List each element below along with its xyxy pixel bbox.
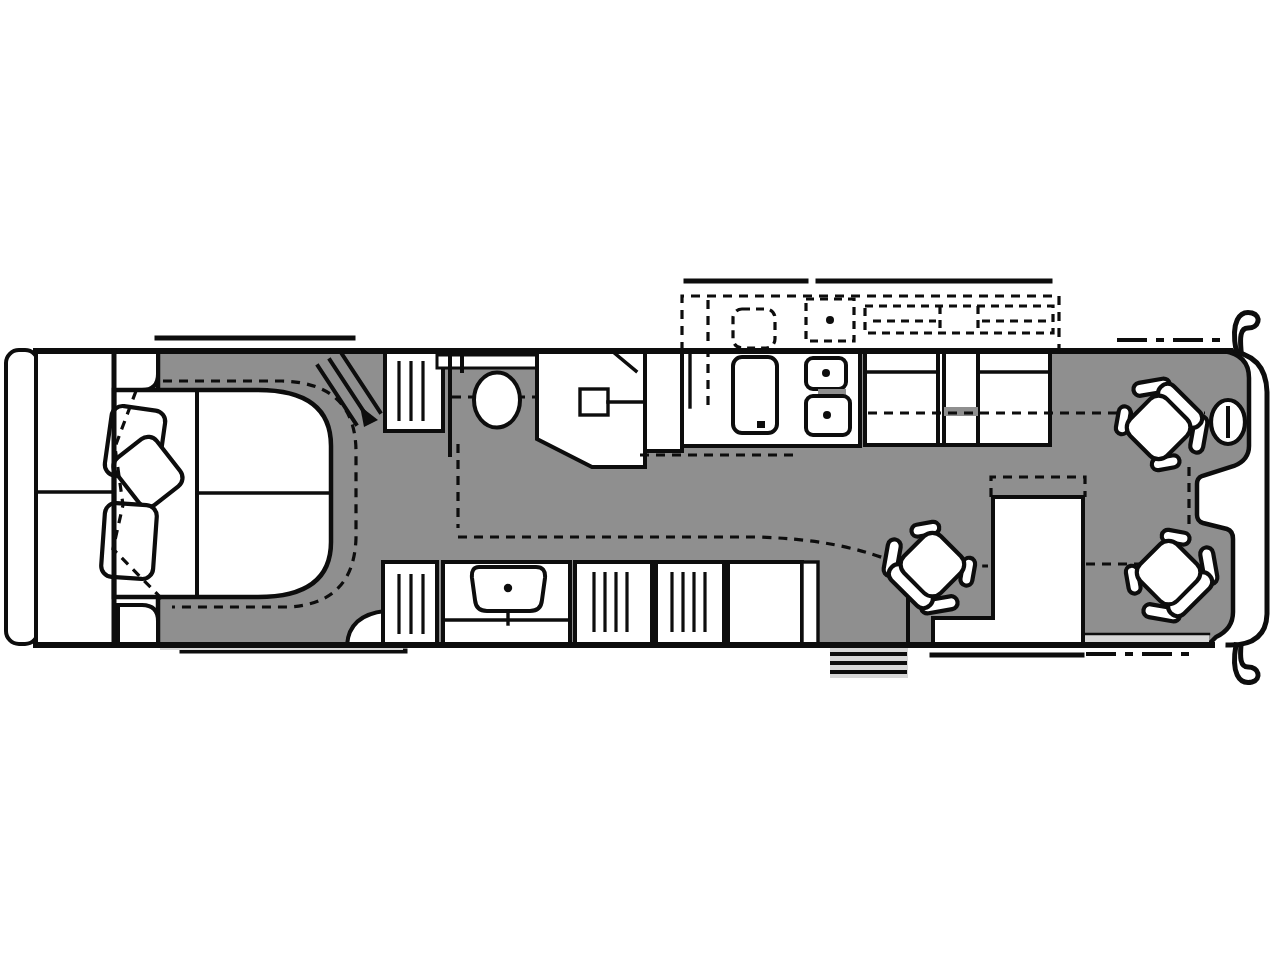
louvered-cabinet — [656, 562, 724, 645]
cabinet-end-panel — [802, 562, 818, 645]
rear-wardrobe — [36, 351, 114, 645]
pillow — [100, 502, 157, 579]
nightstand-top — [114, 351, 158, 390]
mirror-top — [1234, 313, 1258, 350]
bath-window — [437, 355, 538, 368]
shower-head — [580, 389, 608, 415]
floor-plan-page — [0, 0, 1280, 960]
louvered-cabinet — [575, 562, 652, 645]
kitchen-counter-stove-unit — [865, 351, 1050, 445]
double-kitchen-sink — [806, 358, 850, 435]
floor-plan-svg — [0, 0, 1280, 960]
plain-cabinet — [728, 562, 802, 645]
steering-wheel — [1211, 400, 1245, 444]
refrigerator — [733, 357, 777, 433]
vanity-with-sink — [443, 562, 570, 645]
louvered-cabinet — [383, 562, 437, 645]
entry-steps — [830, 648, 908, 678]
rear-cap — [6, 350, 38, 644]
nightstand-bottom — [118, 605, 158, 645]
mirror-bottom — [1234, 645, 1258, 682]
linen-closet — [645, 351, 682, 451]
wardrobe-louvered-door — [385, 351, 443, 431]
toilet — [474, 373, 520, 428]
